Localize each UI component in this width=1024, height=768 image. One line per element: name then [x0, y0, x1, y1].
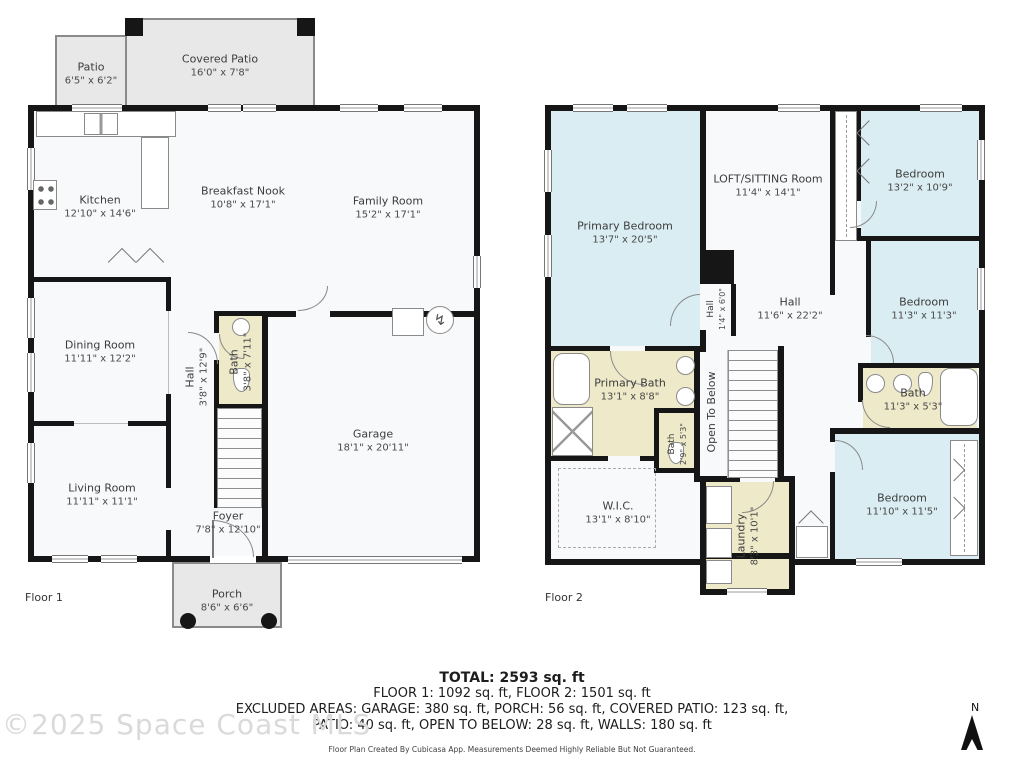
room-dims: 12'10" x 14'6" [64, 208, 136, 221]
room-label-hall2: Hall11'6" x 22'2" [757, 295, 822, 322]
wall-segment [830, 472, 835, 562]
room-label-dining-room: Dining Room11'11" x 12'2" [64, 338, 136, 365]
room-label-garage: Garage18'1" x 20'11" [337, 427, 409, 454]
wall-segment [640, 456, 654, 461]
wall-segment [654, 408, 699, 413]
room-dims: 13'2" x 10'9" [887, 182, 952, 195]
room-name: Family Room [353, 194, 423, 208]
patio-column [297, 18, 315, 36]
front-door-opening [210, 556, 256, 563]
window [627, 104, 667, 112]
primary-tub [553, 353, 590, 405]
wall-segment [34, 277, 168, 282]
wall-segment [700, 111, 706, 250]
garage-door [288, 556, 462, 564]
wall-segment [778, 346, 784, 480]
window [544, 235, 552, 277]
wall-segment [645, 346, 694, 351]
window [856, 558, 902, 566]
watermark: ©2025 Space Coast MLS [2, 708, 371, 741]
room-label-hall-small: Hall1'4" x 6'0" [706, 288, 728, 330]
room-dims: 1'4" x 6'0" [718, 288, 728, 330]
room-dims: 11'6" x 22'2" [757, 310, 822, 323]
room-dims: 11'3" x 11'3" [891, 310, 956, 323]
room-dims: 11'3" x 5'3" [884, 401, 943, 414]
room-dims: 11'4" x 14'1" [713, 187, 822, 200]
wall-segment [857, 111, 861, 201]
room-dims: 2'9" x 5'3" [679, 423, 689, 465]
room-dims: 13'1" x 8'8" [594, 391, 666, 404]
wall-segment [262, 311, 296, 317]
window [340, 104, 378, 112]
window [101, 555, 137, 563]
wall-segment [166, 426, 171, 488]
wall-segment [789, 476, 795, 559]
stairs [217, 408, 262, 508]
bath-r-tub [940, 368, 978, 426]
room-label-covered-patio: Covered Patio16'0" x 7'8" [182, 52, 258, 79]
opening-line [168, 311, 169, 394]
wall-segment [34, 421, 74, 426]
window [544, 150, 552, 192]
room-label-kitchen: Kitchen12'10" x 14'6" [64, 193, 136, 220]
window [778, 104, 820, 112]
wall-segment [128, 421, 171, 426]
wall-segment [262, 311, 268, 556]
room-name: Primary Bedroom [577, 219, 673, 233]
compass-label: N [971, 701, 979, 714]
wall-segment [166, 277, 171, 311]
room-name: Bath [667, 423, 679, 465]
disclaimer: Floor Plan Created By Cubicasa App. Meas… [0, 745, 1024, 754]
room-label-patio: Patio6'5" x 6'2" [65, 60, 117, 87]
window [208, 104, 241, 112]
closet-track [846, 115, 847, 237]
wall-segment [731, 284, 736, 336]
porch-column [261, 613, 277, 629]
window [573, 104, 613, 112]
room-label-bath-r: Bath11'3" x 5'3" [884, 386, 943, 413]
window [27, 298, 35, 338]
water-heater: ↯ [426, 306, 454, 334]
closet-track [964, 444, 965, 552]
room-label-foyer: Foyer7'8" x 12'10" [195, 509, 260, 536]
room-label-bedroom-br: Bedroom11'10" x 11'5" [866, 491, 938, 518]
room-name: Breakfast Nook [201, 184, 285, 198]
room-name: Patio [65, 60, 117, 74]
stairs-up [728, 350, 778, 478]
room-label-laundry: Laundry8'3" x 10'1" [734, 507, 761, 566]
room-dims: 11'10" x 11'5" [866, 506, 938, 519]
room-name: Covered Patio [182, 52, 258, 66]
room-dims: 18'1" x 20'11" [337, 442, 409, 455]
window [920, 104, 962, 112]
room-label-bedroom-tr: Bedroom13'2" x 10'9" [887, 167, 952, 194]
wall-segment [551, 346, 610, 351]
wall-segment [700, 330, 706, 352]
primary-sink [676, 387, 695, 406]
wall-segment [654, 468, 699, 473]
room-name: Primary Bath [594, 376, 666, 390]
room-name: Living Room [66, 481, 138, 495]
floor2-label: Floor 2 [545, 591, 583, 604]
north-arrow-notch [966, 739, 978, 751]
bath-r-sink [866, 374, 885, 393]
room-label-family-room: Family Room15'2" x 17'1" [353, 194, 423, 221]
room-name: Laundry [734, 507, 748, 566]
patio-column [125, 18, 143, 36]
room-name: Hall [757, 295, 822, 309]
floor-plan-canvas: ↯ Patio6'5" x 6'2" Covered Patio16'0" x … [0, 0, 1024, 768]
room-label-wic: W.I.C.13'1" x 8'10" [585, 499, 650, 526]
room-name: LOFT/SITTING Room [713, 172, 822, 186]
room-name: Dining Room [64, 338, 136, 352]
window [727, 588, 767, 595]
room-name: Garage [337, 427, 409, 441]
opening-line [74, 423, 128, 424]
room-name: Bath [884, 386, 943, 400]
window [977, 268, 985, 310]
room-name: Foyer [195, 509, 260, 523]
room-dims: 13'1" x 8'10" [585, 514, 650, 527]
total-area: TOTAL: 2593 sq. ft [0, 670, 1024, 686]
floor1-label: Floor 1 [25, 591, 63, 604]
room-name: Bedroom [887, 167, 952, 181]
room-name: Bedroom [891, 295, 956, 309]
window [473, 256, 481, 288]
kitchen-sink [84, 113, 118, 135]
room-label-open-to-below: Open To Below [705, 371, 719, 452]
room-name: Kitchen [64, 193, 136, 207]
room-name: Bath [227, 333, 241, 392]
utility-box [392, 308, 424, 336]
room-name: W.I.C. [585, 499, 650, 513]
wall-segment [166, 530, 171, 556]
porch-column [180, 613, 196, 629]
room-label-bedroom-mr: Bedroom11'3" x 11'3" [891, 295, 956, 322]
dryer [706, 528, 732, 558]
room-name: Porch [201, 587, 253, 601]
window [52, 555, 88, 563]
kitchen-island [141, 137, 169, 209]
room-dims: 13'7" x 20'5" [577, 234, 673, 247]
window [977, 140, 985, 180]
room-label-hall1: Hall3'8" x 12'9" [183, 348, 210, 407]
room-name: Hall [183, 348, 197, 407]
room-dims: 16'0" x 7'8" [182, 67, 258, 80]
room-label-bath-small: Bath2'9" x 5'3" [667, 423, 689, 465]
window [27, 353, 35, 392]
room-label-loft: LOFT/SITTING Room11'4" x 14'1" [713, 172, 822, 199]
room-dims: 3'8" x 12'9" [198, 348, 211, 407]
room-label-porch: Porch8'6" x 6'6" [201, 587, 253, 614]
room-label-bath1: Bath3'8" x 7'11" [227, 333, 254, 392]
shower [552, 407, 593, 456]
room-label-primary-bedroom: Primary Bedroom13'7" x 20'5" [577, 219, 673, 246]
room-dims: 8'3" x 10'1" [749, 507, 762, 566]
room-dims: 3'8" x 7'11" [242, 333, 255, 392]
window [404, 104, 442, 112]
room-dims: 11'11" x 11'1" [66, 496, 138, 509]
room-name: Hall [706, 288, 718, 330]
room-dims: 11'11" x 12'2" [64, 353, 136, 366]
room-name: Open To Below [705, 371, 719, 452]
chimney [700, 250, 734, 284]
wall-segment [830, 428, 979, 434]
room-dims: 15'2" x 17'1" [353, 209, 423, 222]
room-label-primary-bath: Primary Bath13'1" x 8'8" [594, 376, 666, 403]
room-label-living-room: Living Room11'11" x 11'1" [66, 481, 138, 508]
window [27, 443, 35, 483]
laundry-cabinet [706, 560, 732, 584]
floor-areas: FLOOR 1: 1092 sq. ft, FLOOR 2: 1501 sq. … [0, 686, 1024, 702]
wall-segment [551, 456, 608, 461]
room-dims: 6'5" x 6'2" [65, 75, 117, 88]
stove [33, 180, 57, 210]
wall-segment [654, 408, 659, 473]
primary-sink [676, 356, 695, 375]
wall-segment [858, 363, 863, 402]
window [243, 104, 276, 112]
room-name: Bedroom [866, 491, 938, 505]
room-dims: 7'8" x 12'10" [195, 524, 260, 537]
room-label-breakfast-nook: Breakfast Nook10'8" x 17'1" [201, 184, 285, 211]
room-dims: 8'6" x 6'6" [201, 602, 253, 615]
wall-segment [866, 241, 871, 337]
room-dims: 10'8" x 17'1" [201, 199, 285, 212]
washer [706, 486, 732, 524]
